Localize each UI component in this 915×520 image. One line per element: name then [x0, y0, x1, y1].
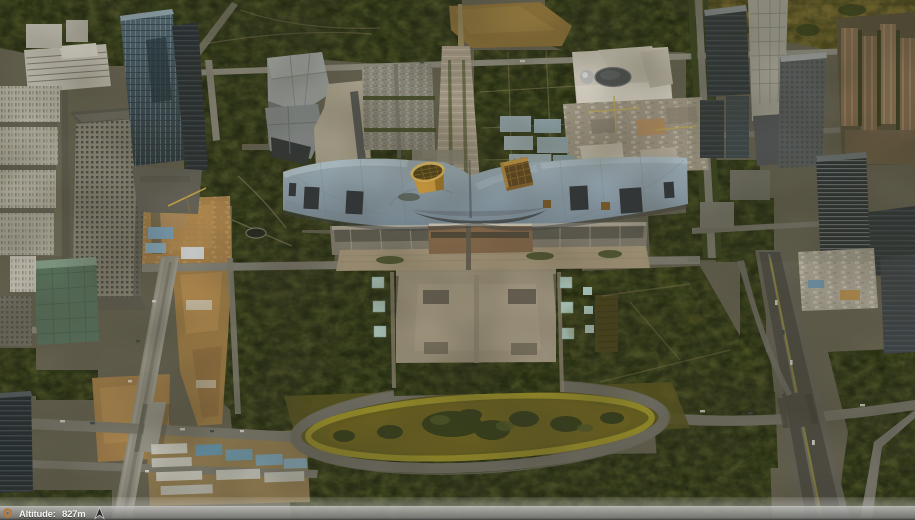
- svg-text:Altitude:: Altitude:: [19, 509, 56, 520]
- svg-text:827m: 827m: [62, 509, 86, 520]
